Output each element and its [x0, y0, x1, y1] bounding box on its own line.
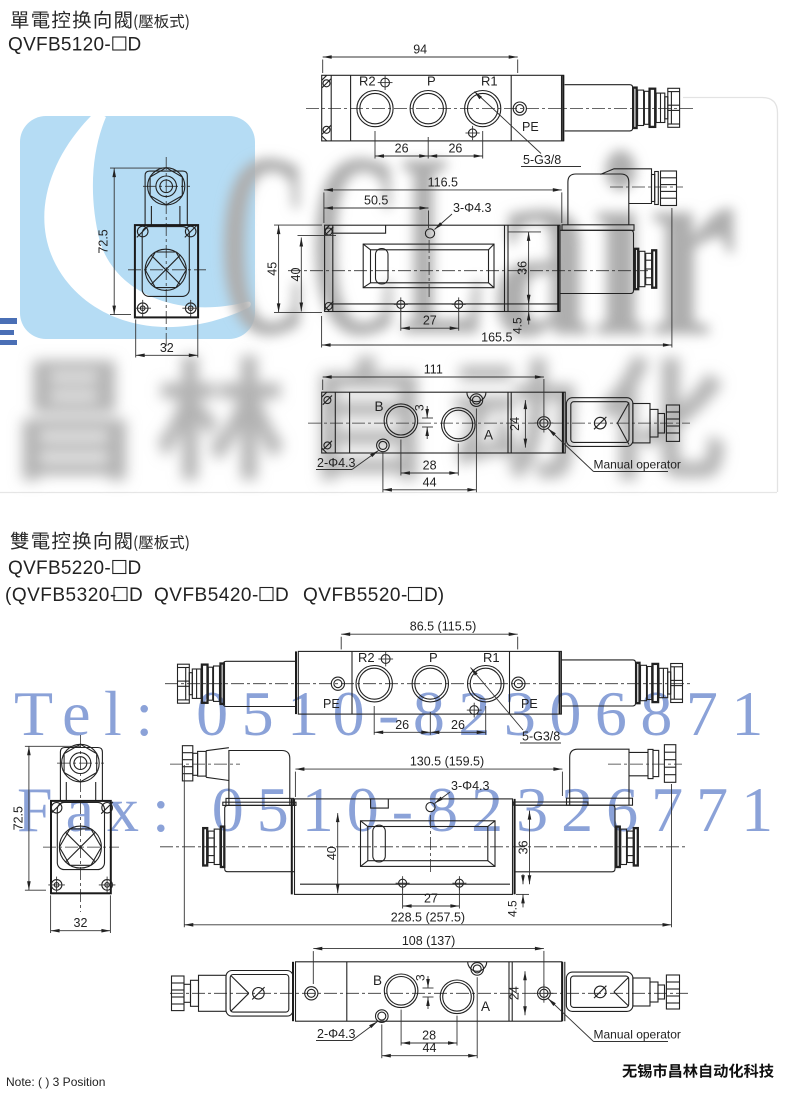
svg-text:QVFB5520-: QVFB5520- — [303, 585, 408, 606]
svg-text:36: 36 — [515, 261, 529, 275]
svg-text:116.5: 116.5 — [428, 175, 458, 189]
svg-text:111: 111 — [424, 363, 443, 377]
svg-text:72.5: 72.5 — [97, 229, 111, 253]
svg-text:36: 36 — [516, 840, 530, 854]
svg-text:QVFB5420-: QVFB5420- — [154, 585, 259, 606]
svg-text:5-G3/8: 5-G3/8 — [522, 730, 560, 744]
svg-text:86.5 (115.5): 86.5 (115.5) — [410, 620, 476, 634]
svg-text:24: 24 — [508, 986, 522, 1000]
svg-text:40: 40 — [325, 846, 339, 860]
svg-text:2-Φ4.3: 2-Φ4.3 — [317, 1027, 356, 1041]
svg-text:228.5 (257.5): 228.5 (257.5) — [391, 910, 465, 924]
svg-text:3-Φ4.3: 3-Φ4.3 — [453, 201, 492, 215]
svg-text:26: 26 — [451, 718, 465, 732]
svg-text:45: 45 — [266, 262, 280, 276]
svg-text:28: 28 — [423, 459, 437, 473]
svg-text:R2: R2 — [359, 74, 376, 89]
svg-text:24: 24 — [508, 417, 522, 431]
svg-text:D: D — [275, 585, 289, 606]
svg-text:27: 27 — [423, 314, 437, 328]
svg-text:R2: R2 — [358, 650, 375, 665]
svg-text:3-Φ4.3: 3-Φ4.3 — [451, 779, 490, 793]
svg-text:26: 26 — [395, 142, 409, 156]
svg-text:44: 44 — [423, 475, 437, 489]
svg-text:R1: R1 — [483, 650, 500, 665]
svg-text:B: B — [375, 399, 384, 414]
svg-text:40: 40 — [289, 268, 303, 282]
svg-text:D): D) — [424, 585, 444, 606]
svg-text:Manual operator: Manual operator — [594, 1028, 681, 1042]
svg-text:P: P — [429, 650, 438, 665]
svg-text:27: 27 — [424, 892, 438, 906]
svg-text:50.5: 50.5 — [364, 194, 388, 208]
svg-text:3: 3 — [414, 974, 428, 981]
svg-text:94: 94 — [413, 43, 427, 57]
svg-text:D: D — [128, 558, 142, 579]
svg-text:72.5: 72.5 — [11, 806, 25, 830]
svg-text:4.5: 4.5 — [506, 900, 520, 917]
svg-text:44: 44 — [423, 1041, 437, 1055]
svg-text:R1: R1 — [481, 74, 498, 89]
svg-text:32: 32 — [160, 341, 174, 355]
svg-text:Manual operator: Manual operator — [594, 458, 681, 472]
svg-text:Fax: 0510-82326771: Fax: 0510-82326771 — [17, 774, 786, 845]
svg-text:PE: PE — [323, 697, 340, 711]
svg-text:B: B — [373, 973, 382, 988]
svg-text:165.5: 165.5 — [481, 331, 512, 345]
svg-text:2-Φ4.3: 2-Φ4.3 — [317, 456, 356, 470]
svg-text:3: 3 — [413, 404, 427, 411]
svg-text:QVFB5120-: QVFB5120- — [8, 35, 111, 56]
svg-text:5-G3/8: 5-G3/8 — [523, 153, 561, 167]
svg-text:26: 26 — [448, 142, 462, 156]
svg-text:PE: PE — [522, 120, 539, 134]
svg-text:Tel: 0510-82306871: Tel: 0510-82306871 — [14, 678, 777, 749]
svg-text:32: 32 — [74, 916, 88, 930]
svg-text:P: P — [427, 74, 436, 89]
svg-text:4.5: 4.5 — [511, 317, 525, 334]
svg-text:D: D — [128, 35, 142, 56]
svg-text:(QVFB5320-: (QVFB5320- — [5, 585, 117, 606]
svg-text:PE: PE — [521, 697, 538, 711]
svg-text:A: A — [481, 999, 490, 1014]
svg-text:26: 26 — [395, 718, 409, 732]
svg-text:Note: ( ) 3 Position: Note: ( ) 3 Position — [6, 1075, 105, 1089]
svg-text:108 (137): 108 (137) — [402, 934, 456, 948]
svg-text:A: A — [484, 428, 493, 443]
svg-text:QVFB5220-: QVFB5220- — [8, 558, 111, 579]
svg-text:130.5 (159.5): 130.5 (159.5) — [410, 755, 484, 769]
svg-text:D: D — [129, 585, 143, 606]
